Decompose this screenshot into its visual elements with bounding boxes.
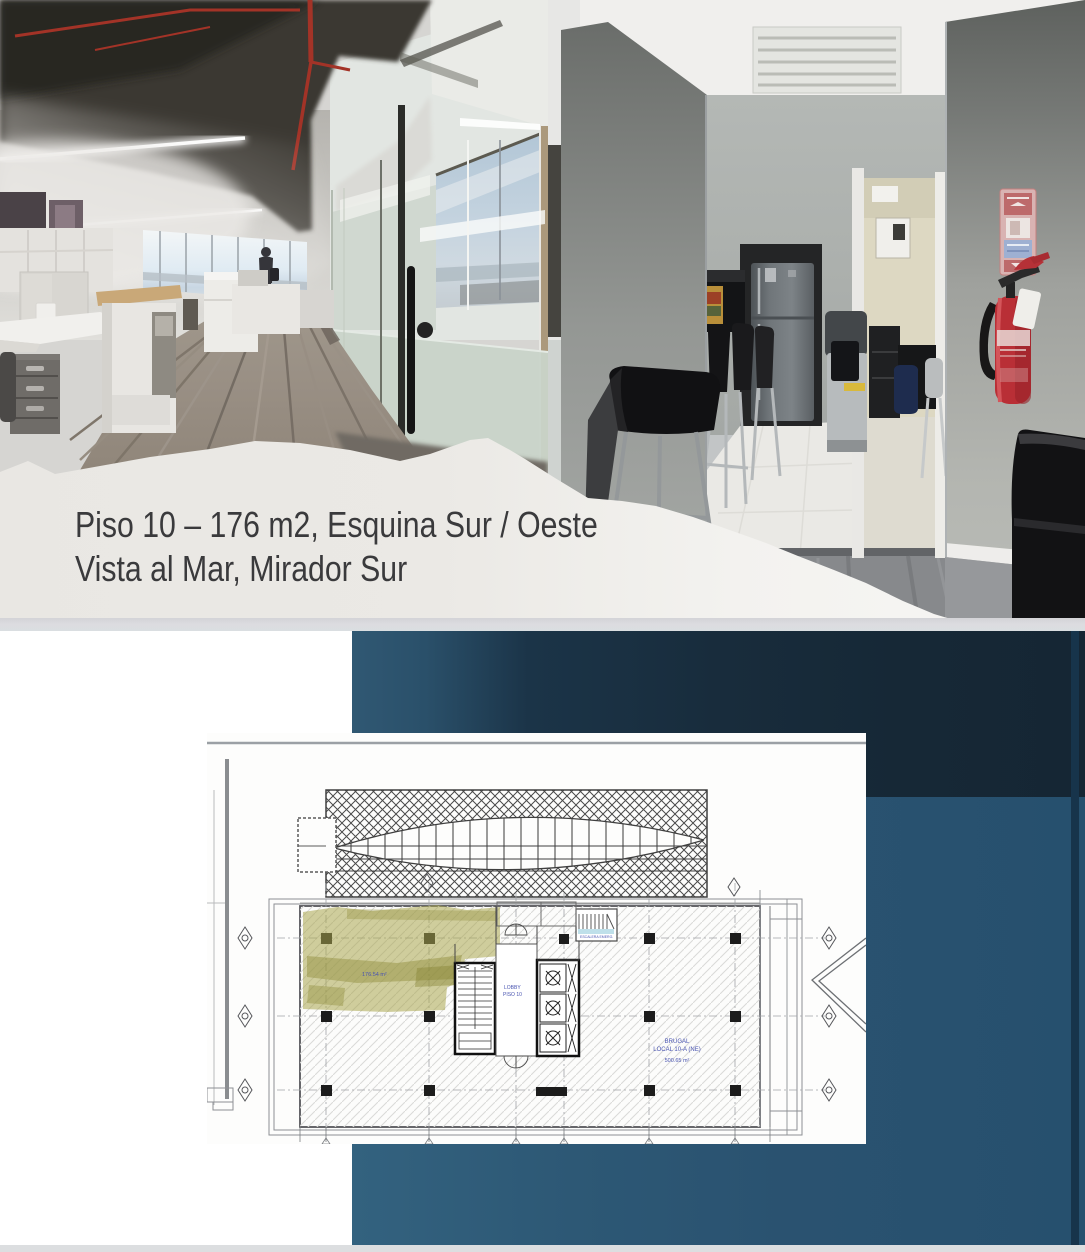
svg-text:LOCAL 10-A (NE): LOCAL 10-A (NE)	[653, 1047, 700, 1053]
svg-text:176.54 m²: 176.54 m²	[362, 972, 387, 978]
svg-text:ESCALERA EMERG.: ESCALERA EMERG.	[580, 935, 613, 939]
svg-text:500.65 m²: 500.65 m²	[665, 1058, 690, 1064]
svg-text:BRUGAL: BRUGAL	[665, 1039, 690, 1045]
svg-text:LOBBY: LOBBY	[504, 985, 521, 991]
svg-text:PISO 10: PISO 10	[503, 992, 522, 998]
